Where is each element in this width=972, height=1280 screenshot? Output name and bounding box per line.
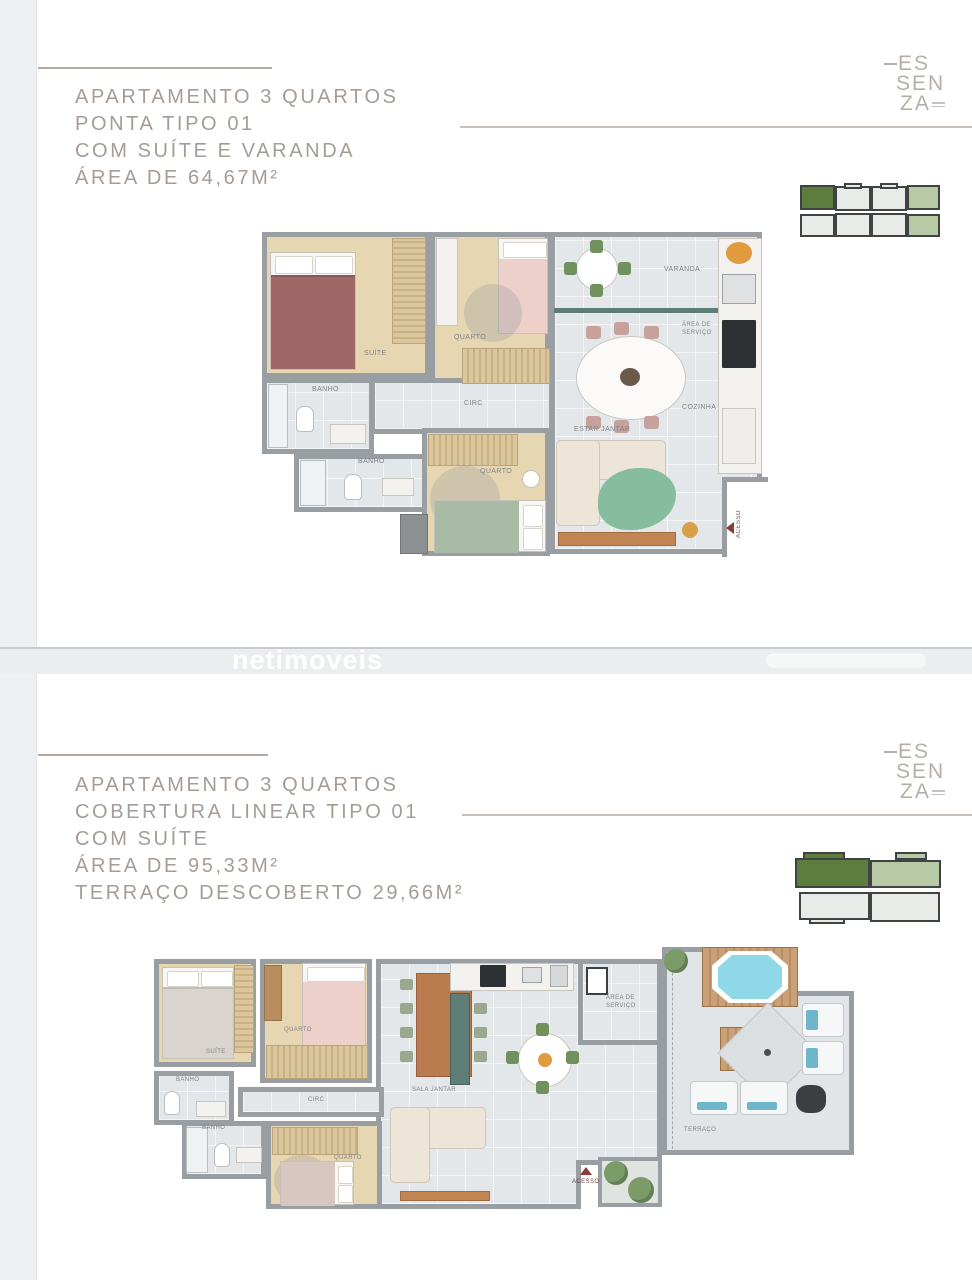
floorplan-1: SUÍTE QUARTO VARANDA ÁREA DE bbox=[258, 228, 768, 560]
logo-dash bbox=[884, 63, 897, 65]
fp1-banho2-vanity bbox=[382, 478, 414, 496]
fp2-label-sala: SALA JANTAR bbox=[412, 1087, 456, 1093]
keyplan2-unit-sage bbox=[895, 852, 927, 860]
fp2-quarto1-bed bbox=[302, 963, 366, 1047]
fp2-sofa-chaise bbox=[390, 1107, 430, 1183]
fp2-banho1-toilet bbox=[164, 1091, 180, 1115]
section-apartment-tipo-ponta: APARTAMENTO 3 QUARTOS PONTA TIPO 01 COM … bbox=[0, 0, 972, 647]
fp1-suite-wardrobe bbox=[392, 238, 426, 344]
plan1-title-line3: COM SUÍTE E VARANDA bbox=[75, 138, 399, 165]
decorative-line-top-left-2 bbox=[38, 754, 268, 756]
fp2-label-quarto2: QUARTO bbox=[334, 1155, 362, 1161]
logo-dash bbox=[884, 751, 897, 753]
fp2-suite-wardrobe bbox=[234, 965, 254, 1053]
decorative-line-right bbox=[460, 126, 972, 128]
fp1-label-quarto2: QUARTO bbox=[480, 468, 512, 475]
fp2-label-acesso: ACESSO bbox=[572, 1179, 599, 1185]
plan2-title: APARTAMENTO 3 QUARTOS COBERTURA LINEAR T… bbox=[75, 772, 464, 907]
fp1-banho1-shower bbox=[268, 384, 288, 448]
fp1-label-circ: CIRC bbox=[464, 400, 483, 407]
fp2-label-circ: CIRC bbox=[308, 1097, 324, 1103]
fp2-label-banho1: BANHO bbox=[176, 1077, 199, 1083]
fp2-label-quarto1: QUARTO bbox=[284, 1027, 312, 1033]
watermark-mark bbox=[766, 653, 926, 668]
fp1-shaft bbox=[400, 514, 428, 554]
keyplan2-unit bbox=[809, 918, 845, 924]
fp1-label-quarto1: QUARTO bbox=[454, 334, 486, 341]
fp2-quarto2-bed bbox=[280, 1161, 354, 1205]
fp2-quarto1-armoire bbox=[264, 965, 282, 1021]
logo-line-za: ZA bbox=[900, 780, 931, 804]
essenza-logo-2: ES SEN ZA bbox=[878, 736, 958, 814]
fp2-washer bbox=[586, 967, 608, 995]
fp2-banho2-shower bbox=[186, 1127, 208, 1173]
fp1-banho2-shower bbox=[300, 460, 326, 506]
fp1-varanda-chair bbox=[590, 284, 603, 297]
plan2-title-line1: APARTAMENTO 3 QUARTOS bbox=[75, 772, 464, 799]
fp1-quarto2-wardrobe bbox=[428, 434, 518, 466]
keyplan1-unit bbox=[800, 214, 835, 237]
fp1-banho1-vanity bbox=[330, 424, 366, 444]
fp1-centerpiece bbox=[620, 368, 640, 386]
fp2-lounger bbox=[690, 1081, 738, 1115]
fp2-kitchen-fridge bbox=[550, 965, 568, 987]
section-divider: netimoveis bbox=[0, 647, 972, 674]
decorative-line-right-2 bbox=[462, 814, 972, 816]
plan2-title-line3: COM SUÍTE bbox=[75, 826, 464, 853]
decorative-line-top-left bbox=[38, 67, 272, 69]
fp1-kitchen-sink bbox=[722, 274, 756, 304]
fp1-label-cozinha: COZINHA bbox=[682, 404, 716, 411]
keyplan1-unit-sage bbox=[907, 214, 940, 237]
keyplan2-unit bbox=[799, 892, 870, 920]
fp2-lounger bbox=[802, 1003, 844, 1037]
keyplan1-unit bbox=[880, 183, 898, 189]
keyplan1-unit bbox=[871, 213, 907, 237]
keyplan2-unit bbox=[870, 892, 940, 922]
fp2-acesso-arrow bbox=[580, 1167, 592, 1175]
fp1-kitchen-cabinet bbox=[722, 408, 756, 464]
fp2-grill bbox=[796, 1085, 826, 1113]
fp2-plant bbox=[664, 949, 688, 973]
fp1-outline-step bbox=[722, 477, 768, 557]
fp2-label-suite: SUÍTE bbox=[206, 1049, 226, 1055]
watermark-netimoveis: netimoveis bbox=[232, 645, 383, 676]
fp1-label-estar: ESTAR JANTAR bbox=[574, 426, 630, 433]
fp1-banho1-toilet bbox=[296, 406, 314, 432]
essenza-logo: ES SEN ZA bbox=[878, 48, 958, 126]
fp2-jacuzzi-water bbox=[718, 955, 782, 999]
fp1-acesso-arrow bbox=[726, 522, 734, 534]
fp1-room-circ bbox=[370, 378, 554, 434]
fp1-quarto2-bed bbox=[434, 500, 546, 552]
keyplan2-unit-highlight bbox=[795, 858, 870, 888]
fp2-banho2-vanity bbox=[236, 1147, 262, 1163]
logo-small-text bbox=[932, 788, 945, 797]
fp2-label-terraco: TERRAÇO bbox=[684, 1127, 716, 1133]
fp2-banho1-vanity bbox=[196, 1101, 226, 1117]
fp1-label-suite: SUÍTE bbox=[364, 350, 387, 357]
keyplan-1 bbox=[800, 183, 940, 239]
fp1-fruit-bowl bbox=[726, 242, 752, 264]
keyplan1-unit bbox=[835, 186, 871, 211]
plan1-title-line2: PONTA TIPO 01 bbox=[75, 111, 399, 138]
fp2-kitchen-sink bbox=[522, 967, 542, 983]
fp1-label-servico-2: SERVIÇO bbox=[682, 330, 712, 336]
fp2-plant bbox=[604, 1161, 628, 1185]
plan2-title-line5: TERRAÇO DESCOBERTO 29,66M² bbox=[75, 880, 464, 907]
fp1-label-banho2: BANHO bbox=[358, 458, 385, 465]
plan1-title-line4: ÁREA DE 64,67M² bbox=[75, 165, 399, 192]
fp1-varanda-chair bbox=[618, 262, 631, 275]
fp2-suite-bed bbox=[162, 967, 234, 1059]
keyplan1-unit bbox=[871, 186, 907, 211]
fp1-label-acesso: ACESSO bbox=[736, 510, 742, 538]
fp1-label-servico-1: ÁREA DE bbox=[682, 322, 711, 328]
plan1-title: APARTAMENTO 3 QUARTOS PONTA TIPO 01 COM … bbox=[75, 84, 399, 192]
plan2-title-line4: ÁREA DE 95,33M² bbox=[75, 853, 464, 880]
keyplan1-unit-sage bbox=[907, 185, 940, 210]
fp1-varanda-chair bbox=[564, 262, 577, 275]
fp1-label-varanda: VARANDA bbox=[664, 266, 700, 273]
fp2-covered-projection-line bbox=[672, 953, 673, 1149]
fp2-quarto1-wardrobe bbox=[266, 1045, 368, 1079]
fp1-quarto2-nightstand bbox=[522, 470, 540, 488]
keyplan2-unit-sage bbox=[870, 860, 941, 888]
keyplan-2 bbox=[795, 852, 943, 924]
fp2-label-servico-2: SERVIÇO bbox=[606, 1003, 636, 1009]
fp1-sofa-chaise bbox=[556, 440, 600, 526]
fp2-console bbox=[400, 1191, 490, 1201]
fp2-sail-pole bbox=[764, 1049, 771, 1056]
fp1-tv-console bbox=[558, 532, 676, 546]
fp1-kitchen-stove bbox=[722, 320, 756, 368]
logo-line-za: ZA bbox=[900, 92, 931, 116]
fp1-pouf bbox=[682, 522, 698, 538]
fp2-quarto2-wardrobe bbox=[272, 1127, 358, 1155]
fp2-terrace-step bbox=[793, 947, 854, 996]
fp1-varanda-chair bbox=[590, 240, 603, 253]
keyplan1-unit bbox=[844, 183, 862, 189]
keyplan1-unit bbox=[835, 213, 871, 237]
floorplan-2: SUÍTE BANHO QUARTO CIRC BANHO bbox=[150, 945, 940, 1213]
fp1-suite-bed bbox=[270, 252, 356, 370]
plan1-title-line1: APARTAMENTO 3 QUARTOS bbox=[75, 84, 399, 111]
fp2-lounger bbox=[802, 1041, 844, 1075]
fp2-plant bbox=[628, 1177, 654, 1203]
fp2-label-servico-1: ÁREA DE bbox=[606, 995, 635, 1001]
brochure-page: APARTAMENTO 3 QUARTOS PONTA TIPO 01 COM … bbox=[0, 0, 972, 1280]
fp1-quarto1-wardrobe bbox=[462, 348, 550, 384]
fp1-varanda-rail bbox=[554, 308, 722, 313]
plan2-title-line2: COBERTURA LINEAR TIPO 01 bbox=[75, 799, 464, 826]
fp2-banho2-toilet bbox=[214, 1143, 230, 1167]
fp2-kitchen-stove bbox=[480, 965, 506, 987]
fp2-fruit-bowl bbox=[538, 1053, 552, 1067]
fp1-quarto1-desk bbox=[436, 238, 458, 326]
fp1-label-banho1: BANHO bbox=[312, 386, 339, 393]
section-apartment-cobertura: APARTAMENTO 3 QUARTOS COBERTURA LINEAR T… bbox=[0, 674, 972, 1280]
keyplan1-unit-highlight bbox=[800, 185, 835, 210]
fp2-lounger bbox=[740, 1081, 788, 1115]
fp2-label-banho2: BANHO bbox=[202, 1125, 225, 1131]
fp1-banho2-toilet bbox=[344, 474, 362, 500]
fp2-kitchen-peninsula bbox=[450, 993, 470, 1085]
logo-small-text bbox=[932, 100, 945, 109]
